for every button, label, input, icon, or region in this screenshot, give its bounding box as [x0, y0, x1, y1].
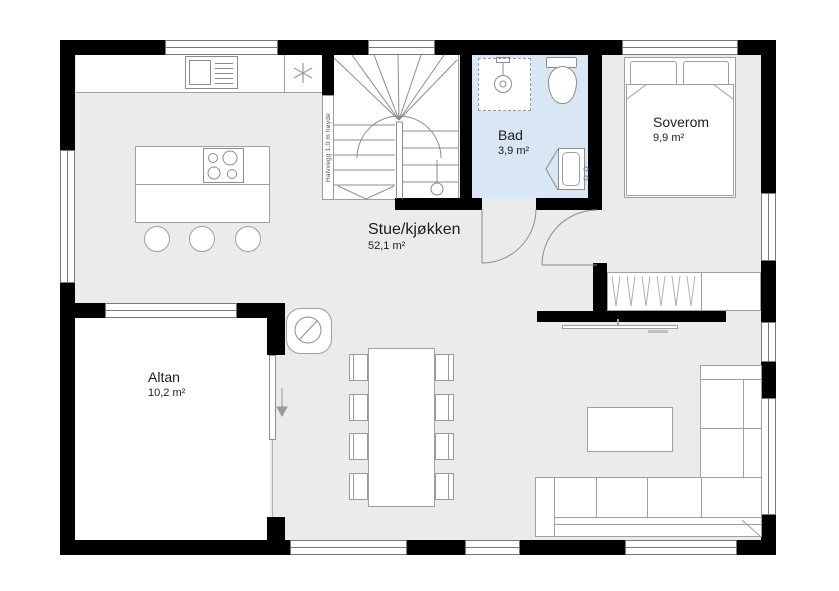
window-bedroom-right	[761, 193, 776, 261]
room-area: 3,9 m²	[498, 145, 529, 158]
wall-bedroom-left	[593, 263, 607, 315]
sofa-backrest-line	[554, 524, 761, 525]
window-living-left	[60, 150, 75, 283]
vanity-basin	[562, 152, 580, 186]
bar-stool-2	[189, 226, 215, 252]
room-area: 52,1 m²	[368, 240, 460, 253]
window-living-right	[761, 398, 776, 515]
sliding-door-panel	[269, 355, 276, 440]
dining-chair	[349, 354, 368, 381]
counter-divider-line	[284, 54, 285, 93]
room-name: Altan	[148, 369, 185, 386]
sliding-door-track	[272, 440, 273, 517]
dining-chair	[349, 473, 368, 500]
dining-chair	[435, 394, 454, 421]
wardrobe-divider-line	[701, 273, 702, 310]
window-bottom-3	[625, 540, 737, 555]
wall-terrace-right-lower	[267, 517, 285, 555]
sofa-cushion-line	[701, 478, 702, 517]
staircase-area	[333, 54, 459, 200]
room-label-bathroom: Bad 3,9 m²	[498, 127, 529, 158]
dining-chair	[435, 354, 454, 381]
room-area: 9,9 m²	[653, 132, 709, 145]
room-label-living-kitchen: Stue/kjøkken 52,1 m²	[368, 220, 460, 253]
half-wall-label: Halvvegg 1,0 m høyde	[325, 113, 332, 182]
window-bottom-1	[290, 540, 407, 555]
sofa-line	[701, 379, 761, 380]
window-terrace	[105, 303, 237, 318]
wall-stairs-left	[322, 40, 334, 95]
sofa-cushion-line	[647, 478, 648, 517]
wall-hall-top	[536, 198, 602, 210]
terrace-floor	[68, 308, 270, 548]
bar-stool-1	[144, 226, 170, 252]
bathroom-vanity	[558, 148, 585, 190]
window-stairs	[368, 40, 435, 55]
dining-chair	[435, 433, 454, 460]
sofa-backrest-line	[554, 517, 761, 518]
wall-bathroom-left	[460, 40, 472, 210]
wall-left	[60, 40, 75, 555]
sofa-cushion-line	[596, 478, 597, 517]
room-area: 10,2 m²	[148, 387, 185, 400]
window-bottom-2	[465, 540, 520, 555]
room-name: Stue/kjøkken	[368, 220, 460, 239]
dining-chair	[349, 433, 368, 460]
shower	[478, 58, 531, 111]
window-bedroom-top	[622, 40, 738, 55]
wall-bathroom-bottom-stub	[460, 198, 482, 210]
half-wall: Halvvegg 1,0 m høyde	[322, 95, 334, 200]
room-label-bedroom: Soverom 9,9 m²	[653, 114, 709, 145]
dining-chair	[349, 394, 368, 421]
tv-console	[648, 330, 668, 333]
room-name: Bad	[498, 127, 529, 144]
sofa-backrest-line	[743, 379, 744, 477]
sofa-armrest-line	[554, 478, 555, 536]
wardrobe	[607, 272, 761, 311]
coffee-table	[587, 407, 673, 452]
sofa-main-section	[535, 477, 762, 537]
wall-terrace-right-upper	[267, 303, 285, 355]
sofa-chaise-section	[700, 365, 762, 478]
window-hall-right	[761, 322, 776, 362]
kitchen-island	[135, 146, 270, 223]
kitchen-counter	[76, 54, 324, 93]
window-kitchen	[165, 40, 278, 55]
wall-bathroom-right	[588, 40, 602, 210]
room-label-terrace: Altan 10,2 m²	[148, 369, 185, 400]
island-divider-line	[136, 184, 269, 185]
dining-chair	[435, 473, 454, 500]
dining-table	[368, 348, 435, 507]
bar-stool-3	[235, 226, 261, 252]
wall-hall-bottom	[537, 311, 726, 322]
tv-stand	[617, 319, 619, 325]
room-name: Soverom	[653, 114, 709, 131]
sofa-line	[701, 428, 761, 429]
tv	[562, 325, 678, 329]
floor-plan: Halvvegg 1,0 m høyde	[0, 0, 839, 591]
